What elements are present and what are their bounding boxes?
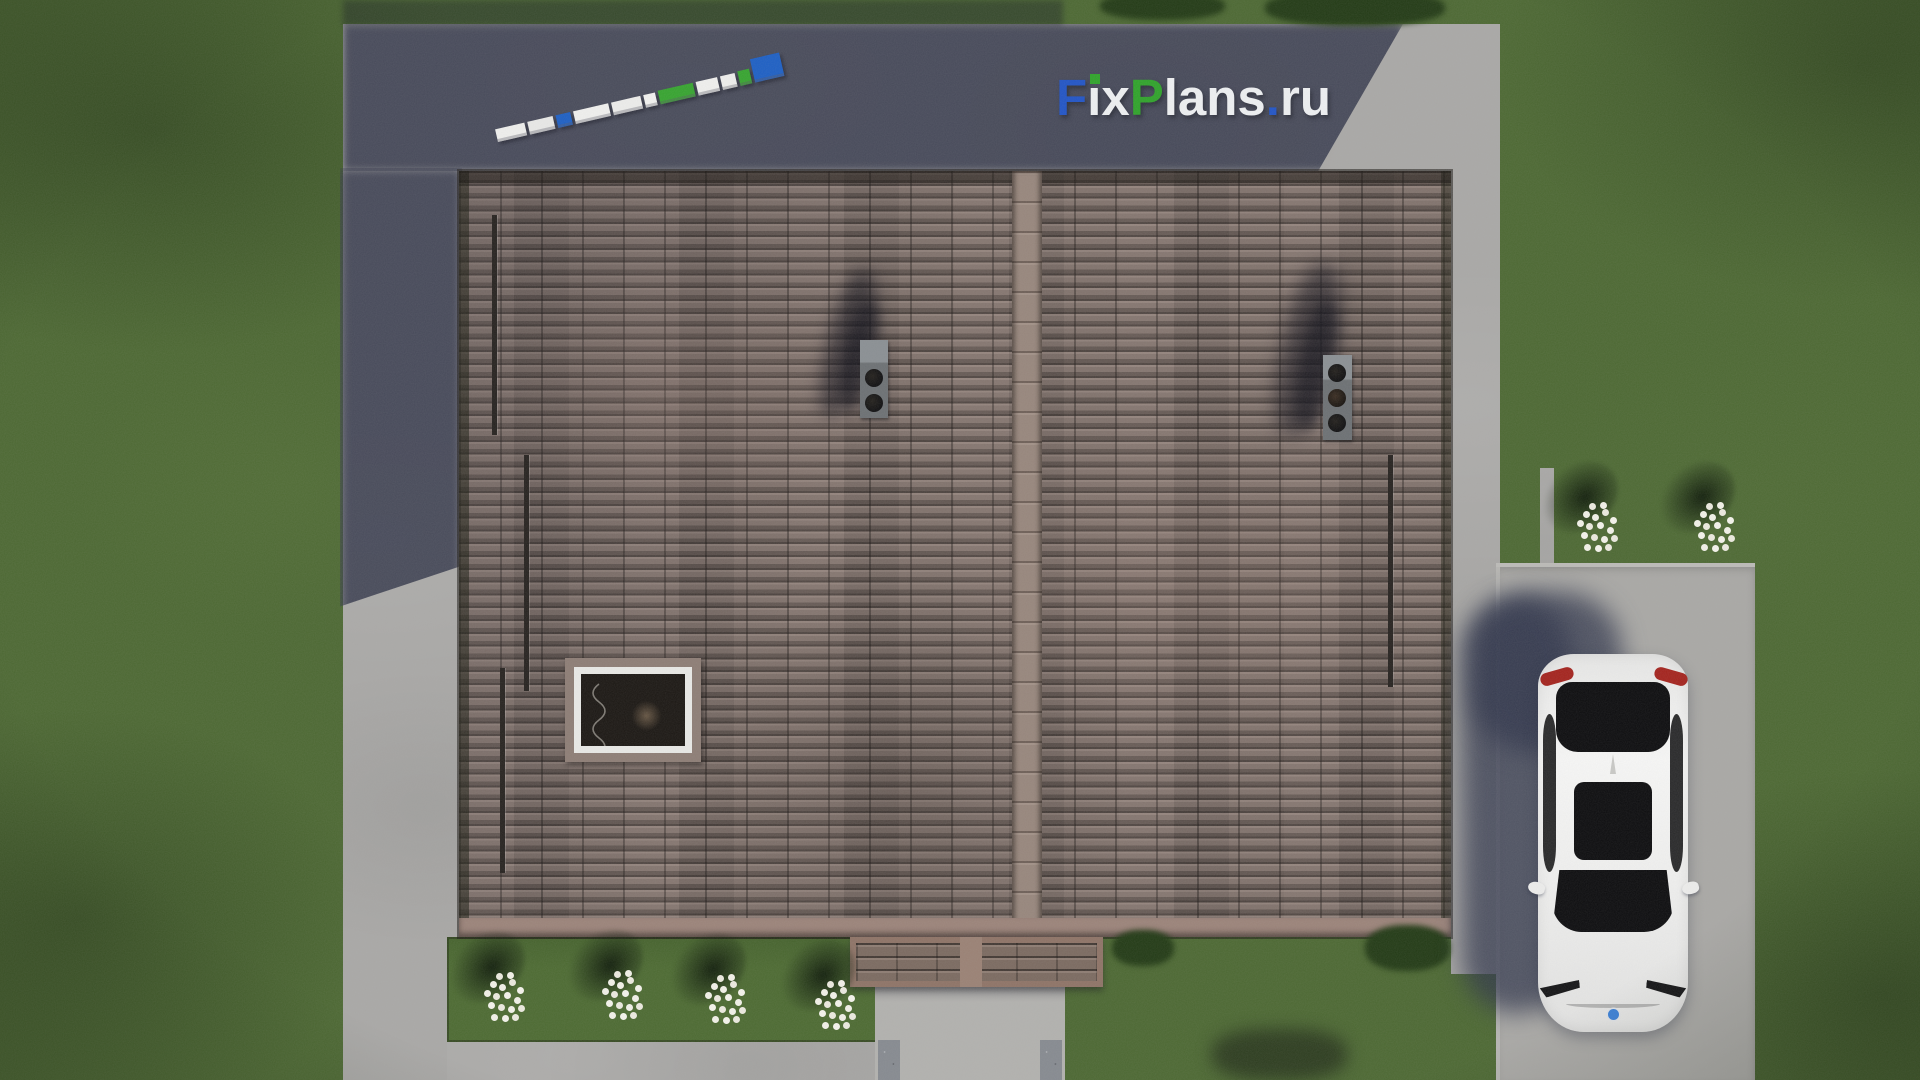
chimney-flue [1328, 364, 1346, 382]
walkway-pillar [1040, 1040, 1062, 1080]
roof-ridge [1012, 171, 1042, 937]
entrance-walkway [875, 985, 1065, 1080]
flower-blossoms [711, 983, 718, 990]
logo-letters-ru: ru [1280, 69, 1331, 126]
flower-blossoms [490, 981, 497, 988]
flower-cluster [793, 963, 883, 1053]
logo-letters-lans: lans [1164, 69, 1266, 126]
roof-edge-right [1441, 171, 1451, 937]
snow-guard-bar [500, 668, 505, 873]
roof-edge-left [459, 171, 469, 937]
logo-letter-f: F [1056, 69, 1087, 126]
logo-letter-x: x [1101, 69, 1129, 126]
scale-bar-segment [737, 69, 752, 86]
flower-cluster [683, 957, 773, 1047]
car-side-glass-left [1543, 714, 1556, 872]
render-scene: FıxPlans.ru [0, 0, 1920, 1080]
chimney-flue [1328, 389, 1346, 407]
logo-letter-i: ı [1087, 68, 1101, 127]
bush [1112, 930, 1174, 966]
snow-guard-bar [492, 215, 497, 435]
car-windshield [1552, 870, 1674, 932]
car-rear-window [1556, 682, 1670, 752]
car-badge [1608, 1009, 1619, 1020]
car [1528, 652, 1700, 1034]
chimney-2 [1323, 355, 1352, 440]
logo-letter-p: P [1130, 69, 1164, 126]
flower-cluster [462, 955, 552, 1045]
tree-shadow [1212, 1029, 1347, 1080]
logo-dot: . [1266, 69, 1280, 126]
chimney-flue [865, 369, 883, 387]
house-roof [459, 171, 1451, 937]
porch-divider [960, 937, 982, 987]
snow-guard-bar [1388, 455, 1393, 687]
roof-window [565, 658, 701, 762]
bush [1365, 925, 1450, 971]
flower-blossoms [608, 979, 615, 986]
chimney-flue [865, 394, 883, 412]
chimney-flue [1328, 414, 1346, 432]
car-roof-panel [1574, 782, 1652, 860]
flower-blossoms [821, 989, 828, 996]
car-side-glass-right [1670, 714, 1683, 872]
curtain-reflection [583, 682, 617, 746]
flower-cluster [580, 953, 670, 1043]
flower-cluster [1672, 485, 1762, 575]
watermark-logo: FıxPlans.ru [1056, 68, 1331, 127]
entrance-porch-roof [850, 937, 1103, 987]
scale-bar-segment [643, 92, 658, 107]
building-shadow-grass-top [343, 0, 1063, 26]
roof-window-frame [574, 667, 692, 753]
flower-cluster [1555, 485, 1645, 575]
snow-guard-bar [524, 455, 529, 691]
flower-blossoms [1583, 511, 1590, 518]
building-shadow-left [340, 168, 462, 620]
flower-blossoms [1700, 511, 1707, 518]
roof-window-glass [581, 674, 685, 746]
roof-edge-top [459, 171, 1451, 183]
chimney-1 [860, 340, 888, 418]
